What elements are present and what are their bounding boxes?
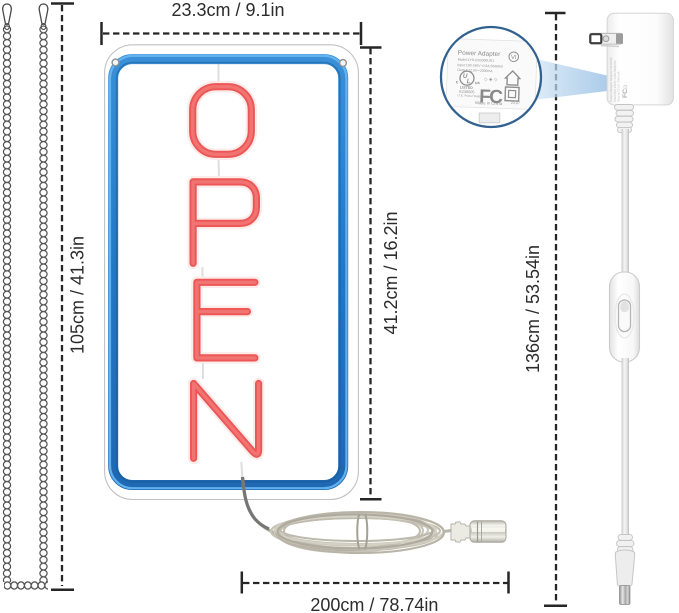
svg-text:⊡: ⊡ <box>623 85 629 89</box>
svg-text:23.07: 23.07 <box>511 101 520 105</box>
svg-text:Output:12.0V 2000mA: Output:12.0V 2000mA <box>617 70 621 102</box>
svg-text:Made in China: Made in China <box>475 100 503 106</box>
svg-text:VI: VI <box>511 55 517 61</box>
svg-text:136cm / 53.54in: 136cm / 53.54in <box>523 245 543 373</box>
svg-text:41.2cm / 16.2in: 41.2cm / 16.2in <box>381 211 401 334</box>
svg-text:23.3cm / 9.1in: 23.3cm / 9.1in <box>171 0 284 20</box>
svg-text:us: us <box>475 80 481 85</box>
svg-text:L: L <box>467 78 471 85</box>
svg-text:200cm / 78.74in: 200cm / 78.74in <box>310 595 438 613</box>
svg-text:105cm / 41.3in: 105cm / 41.3in <box>68 236 88 354</box>
svg-text:FC: FC <box>622 89 629 98</box>
svg-text:◇◈◇: ◇◈◇ <box>484 76 499 82</box>
